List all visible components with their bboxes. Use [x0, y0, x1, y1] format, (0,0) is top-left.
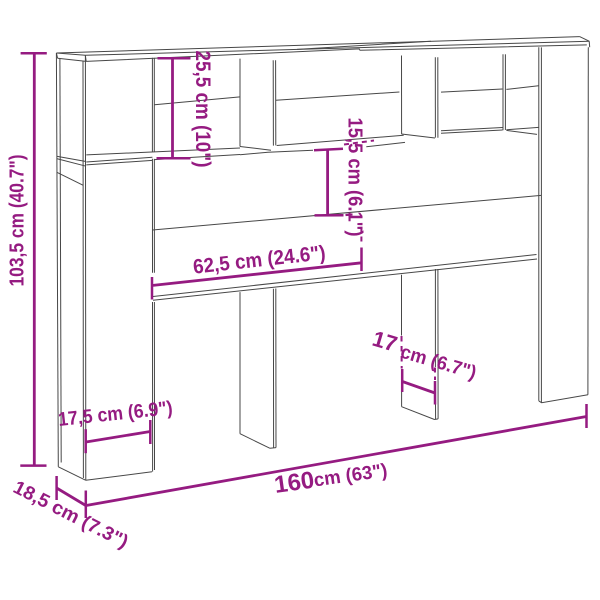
- svg-text:17 cm (6.7"): 17 cm (6.7"): [369, 326, 481, 384]
- svg-text:15,5 cm (6.1"): 15,5 cm (6.1"): [344, 118, 367, 237]
- svg-text:17,5 cm (6.9"): 17,5 cm (6.9"): [57, 397, 174, 431]
- svg-text:25,5 cm (10"): 25,5 cm (10"): [191, 51, 214, 168]
- svg-text:18,5 cm (7.3"): 18,5 cm (7.3"): [10, 477, 132, 553]
- svg-text:103,5 cm (40.7"): 103,5 cm (40.7"): [7, 155, 29, 287]
